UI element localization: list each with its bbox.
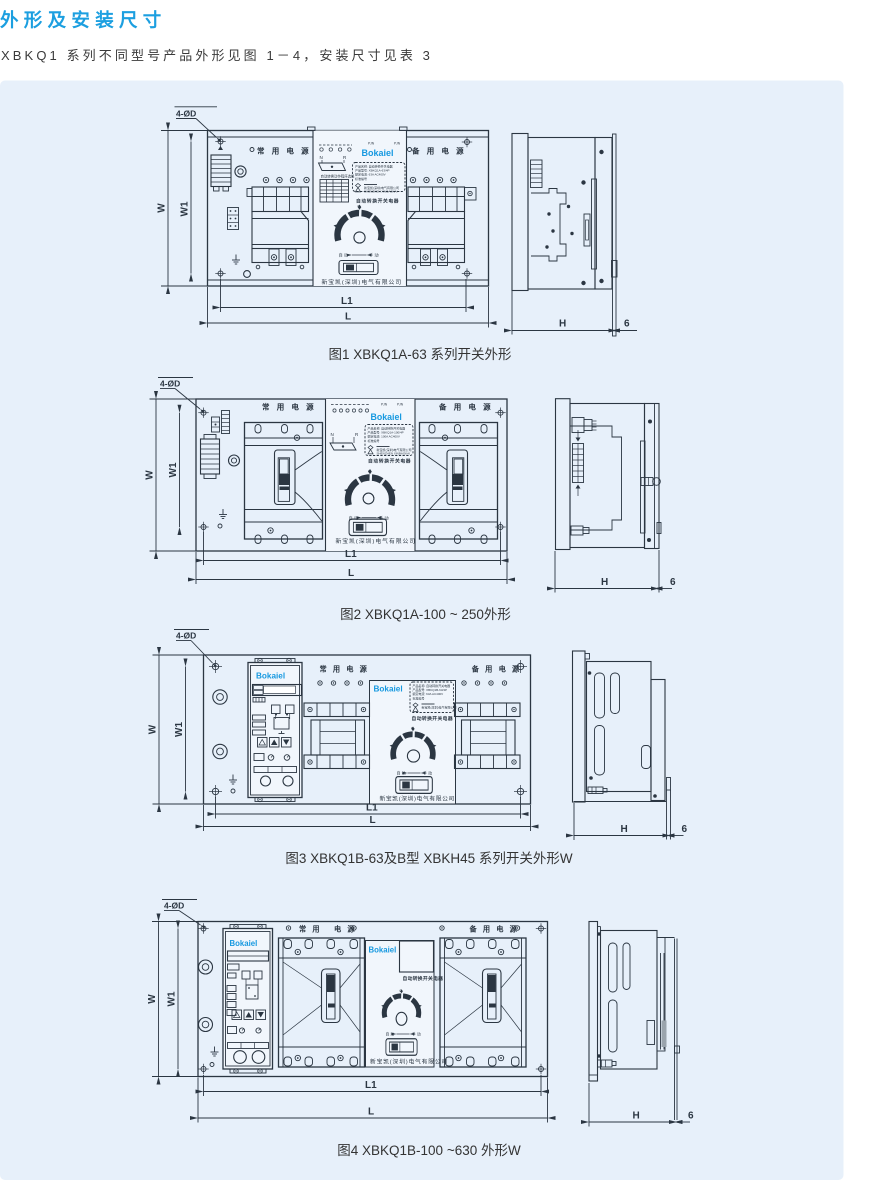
svg-text:Bokaiel: Bokaiel — [371, 412, 402, 422]
svg-text:PJN: PJN — [394, 142, 401, 146]
svg-text:常用 电源: 常用 电源 — [299, 925, 361, 934]
svg-text:手 动: 手 动 — [369, 252, 379, 259]
svg-text:0: 0 — [358, 205, 360, 209]
svg-text:Bokaiel: Bokaiel — [256, 672, 285, 681]
svg-text:L1: L1 — [341, 296, 353, 307]
svg-text:手 动: 手 动 — [379, 515, 389, 522]
svg-text:标准编号: 标准编号 — [413, 696, 425, 701]
svg-text:PJN: PJN — [381, 403, 388, 407]
svg-text:4-ØD: 4-ØD — [176, 631, 196, 641]
svg-text:额定电流: 63A AC400V: 额定电流: 63A AC400V — [355, 172, 386, 177]
svg-text:自 动: 自 动 — [386, 1032, 395, 1037]
svg-text:L1: L1 — [345, 549, 357, 560]
svg-text:L1: L1 — [366, 803, 378, 814]
svg-text:图3 XBKQ1B-63及B型 XBKH45 系列开关外形: 图3 XBKQ1B-63及B型 XBKH45 系列开关外形W — [285, 851, 573, 866]
svg-text:PJN: PJN — [368, 142, 375, 146]
svg-text:W: W — [147, 994, 158, 1004]
svg-text:常用电源: 常用电源 — [262, 402, 321, 412]
svg-text:4-ØD: 4-ØD — [164, 901, 184, 911]
svg-text:L: L — [368, 1107, 374, 1118]
svg-text:W: W — [148, 724, 159, 734]
svg-text:6: 6 — [688, 1111, 694, 1122]
svg-text:4-ØD: 4-ØD — [160, 379, 180, 389]
svg-text:图4 XBKQ1B-100 ~630 外形W: 图4 XBKQ1B-100 ~630 外形W — [337, 1143, 521, 1158]
svg-text:图1 XBKQ1A-63 系列开关外形: 图1 XBKQ1A-63 系列开关外形 — [328, 347, 512, 362]
svg-text:SHENZHEN XINBAOKAI: SHENZHEN XINBAOKAI — [377, 452, 411, 456]
svg-text:自 动: 自 动 — [397, 770, 406, 776]
svg-text:新宝凯(深圳)电气有限公司: 新宝凯(深圳)电气有限公司 — [322, 278, 403, 286]
svg-text:0: 0 — [368, 470, 370, 474]
svg-text:W1: W1 — [167, 991, 178, 1006]
svg-text:H: H — [559, 319, 566, 330]
svg-text:W: W — [145, 470, 156, 480]
svg-text:PJN: PJN — [397, 403, 404, 407]
svg-text:XBKQ1 系列不同型号产品外形见图 1－4，安装尺寸见表: XBKQ1 系列不同型号产品外形见图 1－4，安装尺寸见表 3 — [1, 48, 433, 63]
svg-text:L: L — [348, 568, 354, 579]
svg-text:自动转换开关电器: 自动转换开关电器 — [412, 715, 454, 722]
svg-text:标准编号: 标准编号 — [368, 438, 380, 443]
svg-text:自动转换开关电器: 自动转换开关电器 — [368, 458, 411, 465]
svg-text:新宝凯(深圳)电气有限公司: 新宝凯(深圳)电气有限公司 — [422, 705, 457, 710]
svg-text:外形及安装尺寸: 外形及安装尺寸 — [0, 10, 167, 31]
svg-text:常用电源: 常用电源 — [257, 146, 316, 156]
svg-text:备用电源: 备用电源 — [438, 402, 498, 412]
svg-text:W1: W1 — [180, 201, 191, 216]
svg-text:H: H — [633, 1111, 640, 1122]
svg-text:新宝凯(深圳)电气有限公司: 新宝凯(深圳)电气有限公司 — [336, 537, 417, 545]
svg-text:Bokaiel: Bokaiel — [369, 946, 397, 955]
svg-text:手 动: 手 动 — [423, 770, 432, 776]
svg-text:自动转换开关电器: 自动转换开关电器 — [403, 975, 444, 982]
svg-text:自动转换动作程序选择: 自动转换动作程序选择 — [321, 174, 356, 179]
svg-text:N: N — [331, 432, 334, 437]
svg-text:手 动: 手 动 — [412, 1032, 421, 1037]
svg-text:新宝凯(深圳)电气有限公司: 新宝凯(深圳)电气有限公司 — [380, 795, 455, 803]
svg-text:H: H — [601, 577, 608, 588]
svg-text:6: 6 — [670, 577, 676, 588]
svg-text:6: 6 — [682, 824, 688, 835]
svg-text:新宝凯(深圳)电气有限公司: 新宝凯(深圳)电气有限公司 — [370, 1058, 448, 1066]
svg-text:H: H — [621, 824, 628, 835]
svg-text:自 动: 自 动 — [339, 252, 349, 259]
svg-text:Bokaiel: Bokaiel — [374, 685, 403, 694]
svg-text:备用电源: 备用电源 — [411, 146, 471, 156]
svg-text:额定电流: 63A AC400V: 额定电流: 63A AC400V — [413, 691, 444, 696]
svg-text:图2 XBKQ1A-100 ~ 250外形: 图2 XBKQ1A-100 ~ 250外形 — [340, 607, 511, 622]
svg-text:标准编号: 标准编号 — [355, 176, 367, 181]
svg-text:0: 0 — [400, 989, 402, 993]
svg-text:SHENZHEN XINBAOKAI: SHENZHEN XINBAOKAI — [364, 190, 398, 194]
svg-text:额定电流: 100A AC400V: 额定电流: 100A AC400V — [368, 434, 400, 439]
svg-text:W: W — [157, 203, 168, 213]
svg-text:W1: W1 — [168, 462, 179, 477]
svg-text:Bokaiel: Bokaiel — [362, 148, 394, 158]
svg-text:自动转换开关电器: 自动转换开关电器 — [356, 198, 399, 205]
svg-text:备用电源: 备用电源 — [469, 925, 524, 934]
svg-text:L: L — [345, 312, 351, 323]
svg-text:N: N — [320, 155, 323, 160]
svg-text:常用电源: 常用电源 — [320, 665, 374, 674]
svg-text:4-ØD: 4-ØD — [176, 109, 196, 119]
svg-text:0: 0 — [411, 727, 413, 731]
svg-text:备用电源: 备用电源 — [471, 665, 526, 674]
svg-text:L: L — [370, 815, 376, 826]
svg-text:Bokaiel: Bokaiel — [230, 939, 258, 948]
svg-text:W1: W1 — [174, 722, 185, 737]
svg-text:6: 6 — [624, 319, 630, 330]
svg-text:L1: L1 — [365, 1080, 377, 1091]
